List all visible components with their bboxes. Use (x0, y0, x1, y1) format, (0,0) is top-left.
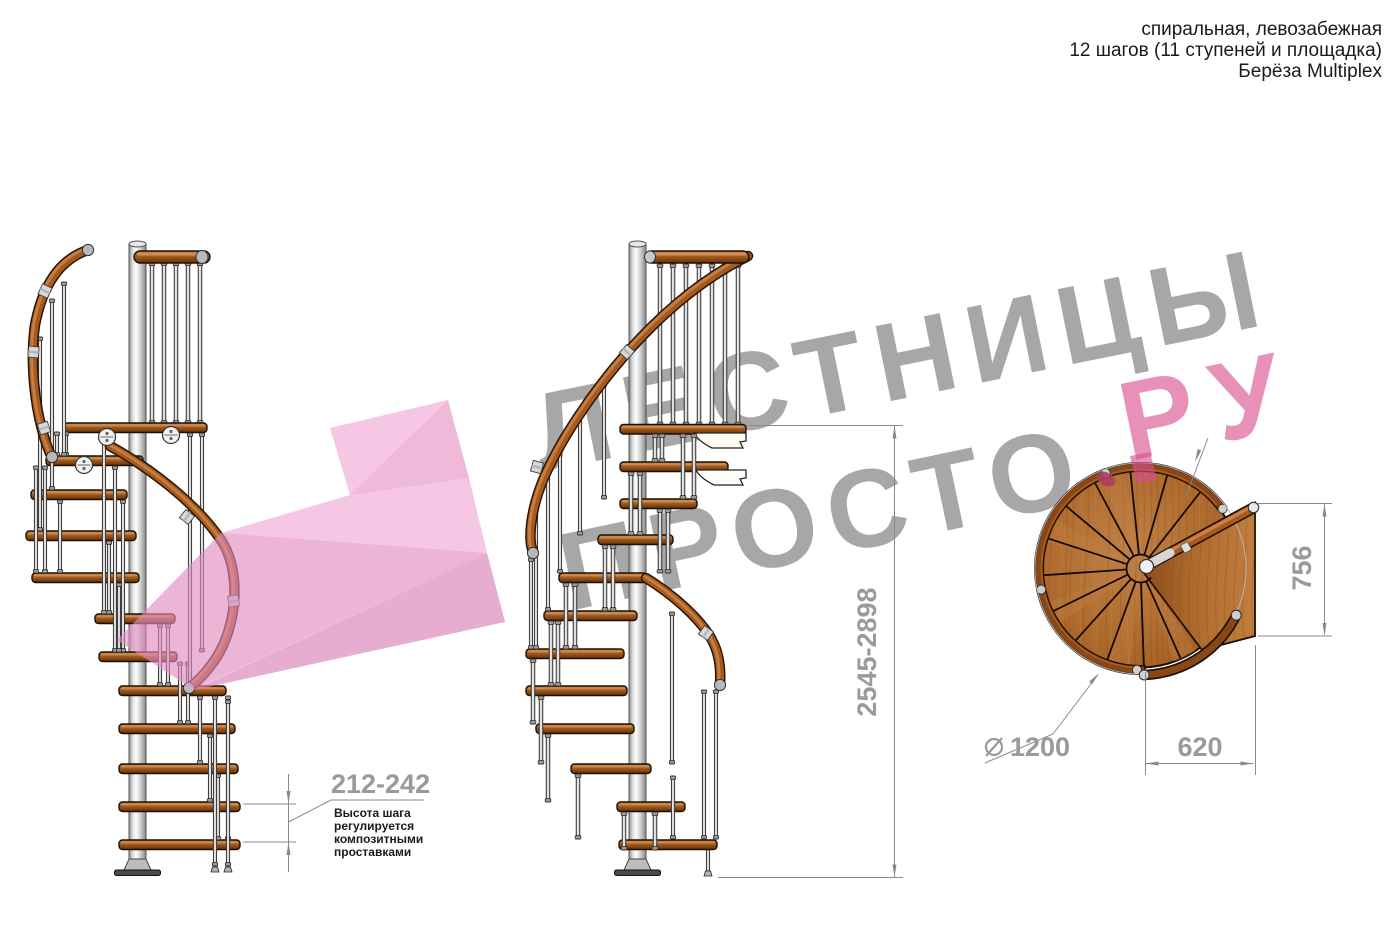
svg-text:Высота шага: Высота шага (334, 806, 411, 820)
svg-text:регулируется: регулируется (334, 819, 414, 833)
svg-text:Берёза Multiplex: Берёза Multiplex (1238, 61, 1382, 82)
svg-text:спиральная, левозабежная: спиральная, левозабежная (1141, 19, 1382, 40)
svg-text:620: 620 (1177, 732, 1222, 762)
svg-text:композитными: композитными (334, 832, 423, 846)
svg-text:2545-2898: 2545-2898 (852, 587, 882, 716)
svg-text:1200: 1200 (1010, 732, 1070, 762)
svg-text:212-242: 212-242 (331, 769, 430, 799)
svg-text:756: 756 (1287, 545, 1317, 590)
svg-text:проставками: проставками (334, 845, 411, 859)
svg-text:12 шагов (11 ступеней и площад: 12 шагов (11 ступеней и площадка) (1069, 40, 1382, 61)
